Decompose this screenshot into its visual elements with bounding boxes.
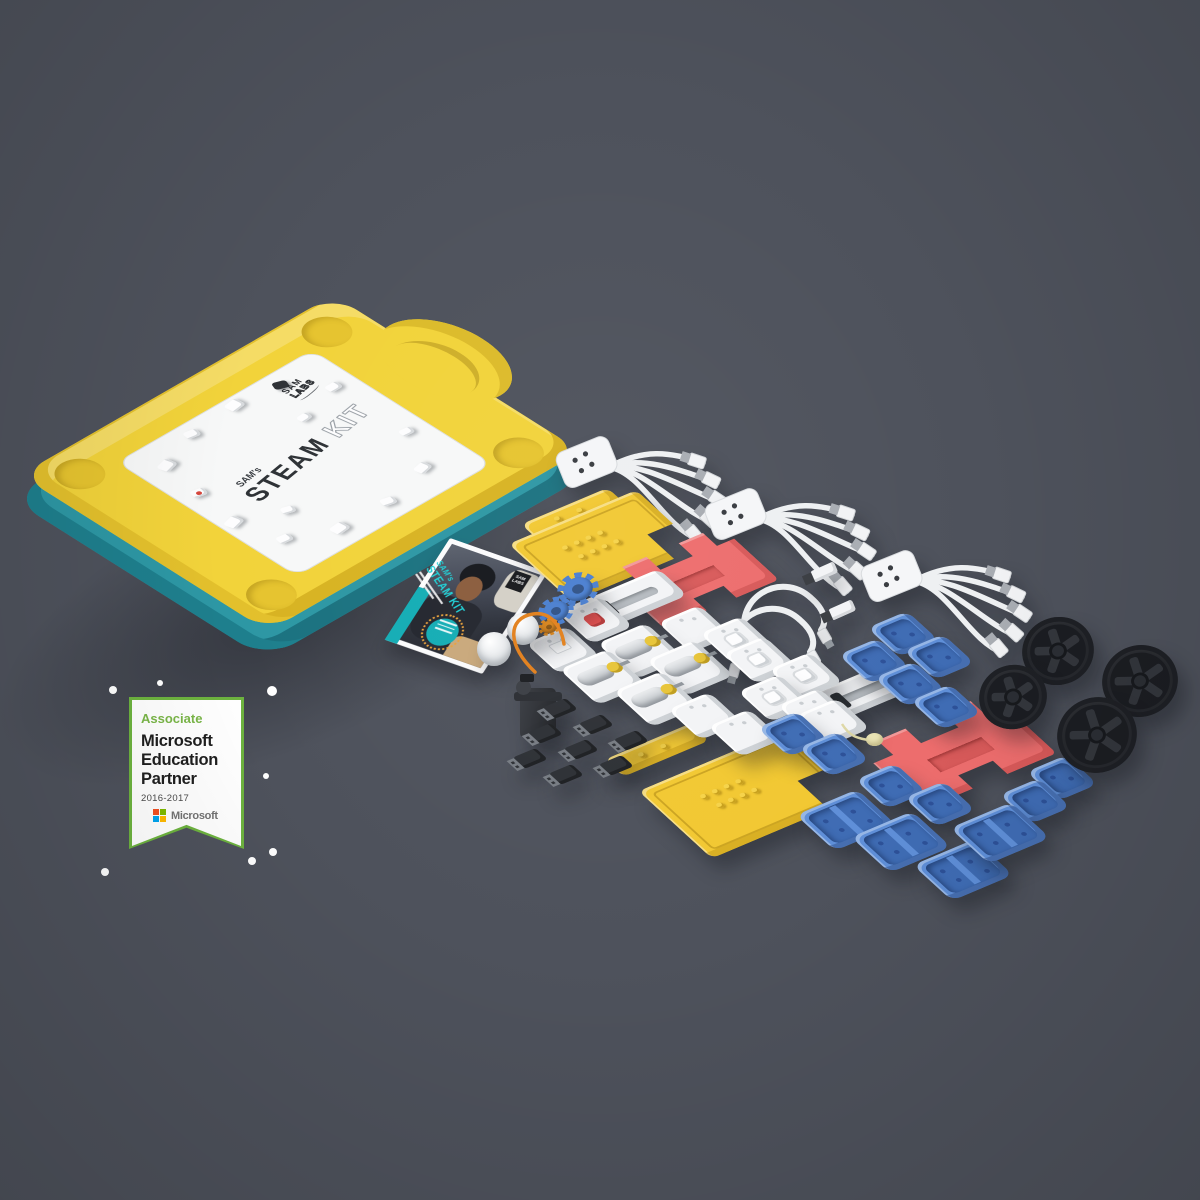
confetti-dot [101,868,109,876]
lid-mini-block [223,398,245,412]
lid-mini-block [275,533,295,544]
confetti-dot [109,686,117,694]
badge-line-microsoft: Microsoft [141,732,236,751]
lid-title-kit: KIT [315,400,378,441]
microsoft-wordmark: Microsoft [171,810,218,822]
lid-mini-block [412,461,432,474]
lid-mini-block [189,487,209,498]
product-render: SAM's STEAM KIT SAM LABS SAM's STEAM KIT [0,0,1200,1200]
badge-associate: Associate [141,711,236,726]
lid-mini-block [156,459,177,473]
lid-mini-block [398,426,416,437]
badge-years: 2016-2017 [141,793,236,804]
badge-line-partner: Partner [141,770,236,789]
microsoft-partner-badge: Associate Microsoft Education Partner 20… [129,697,244,849]
lid-foot [236,573,308,616]
lid-foot [483,431,555,474]
confetti-dot [269,848,277,856]
lid-foot [44,452,116,495]
lid-mini-block [324,381,344,393]
lid-mini-block [328,521,350,535]
badge-line-education: Education [141,751,236,770]
confetti-dot [267,686,277,696]
microsoft-logo-squares [153,809,166,822]
lid-mini-block [182,428,202,439]
confetti-dot [263,773,269,779]
lid-mini-block [379,496,399,507]
confetti-dot [248,857,256,865]
confetti-dot [157,680,163,686]
lid-title: SAM's STEAM KIT [228,389,385,504]
lid-mini-block [223,515,245,529]
sam-labs-logo: SAM LABS [280,374,323,401]
microsoft-logo: Microsoft [153,809,218,822]
lid-foot [291,310,363,353]
badge-text: Associate Microsoft Education Partner 20… [141,711,236,804]
lid-mini-block [279,505,297,515]
